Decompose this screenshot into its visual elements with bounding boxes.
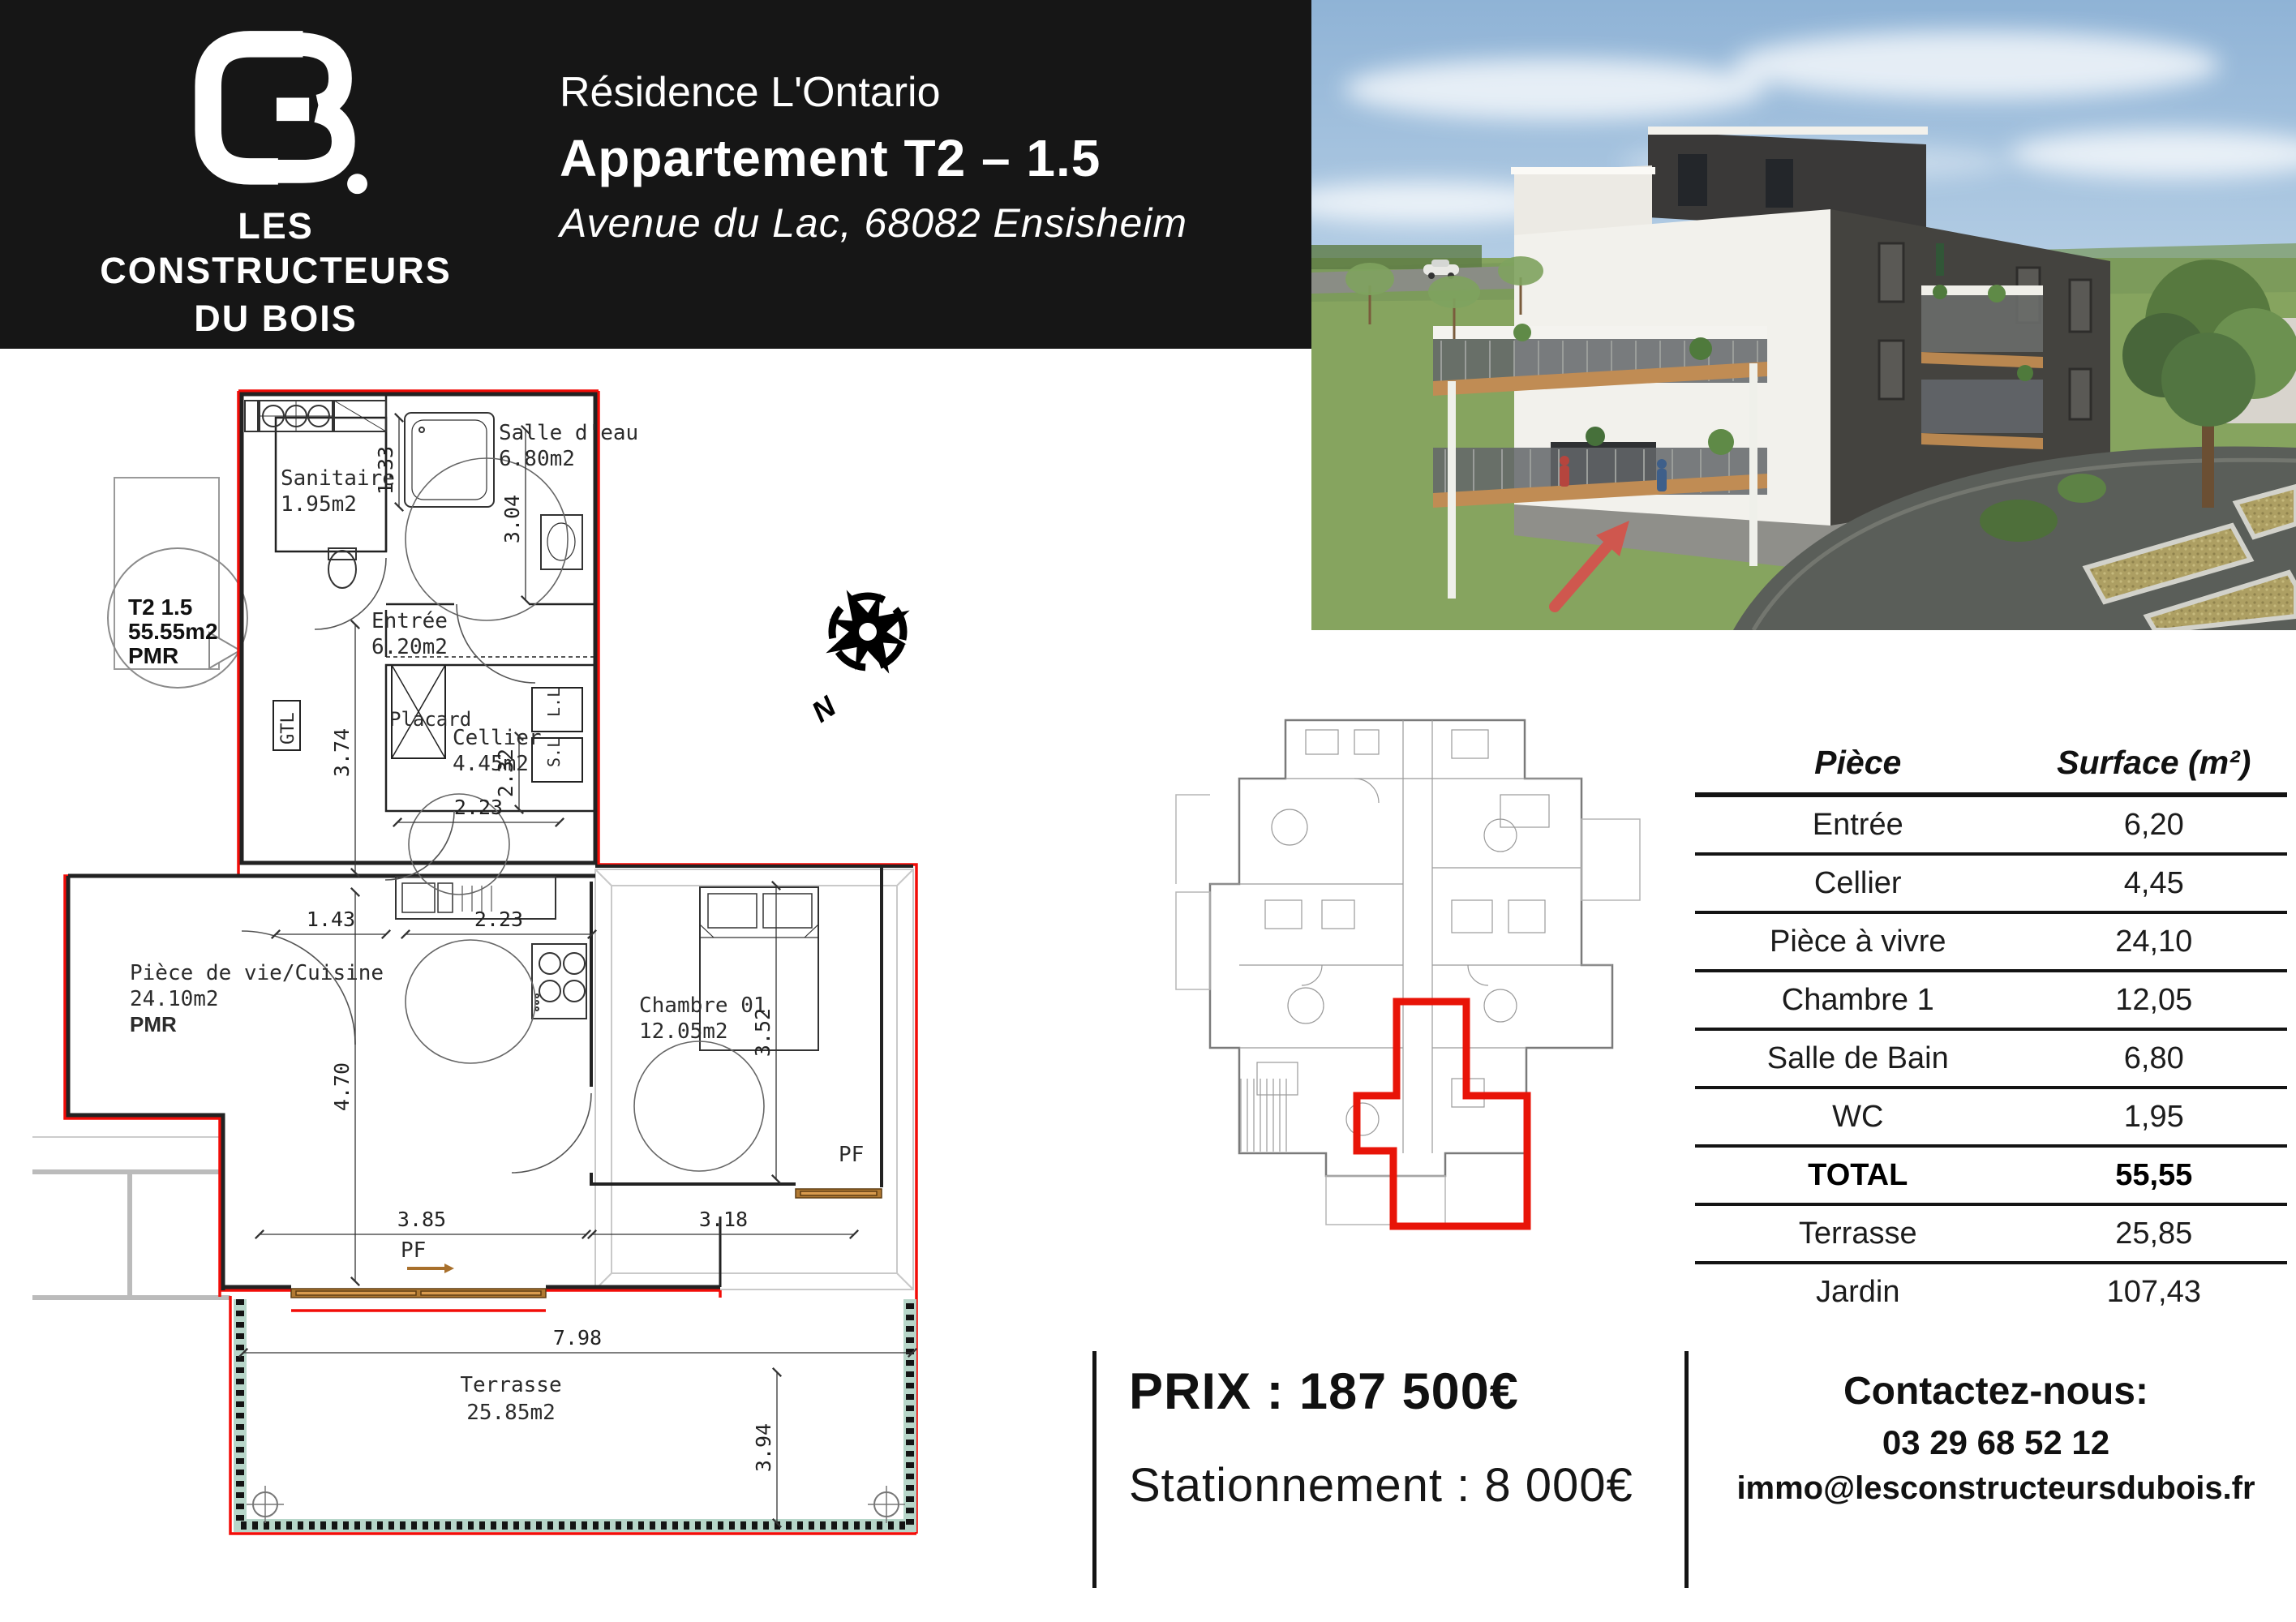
sanitaire-area: 1.95m2 (281, 492, 357, 517)
piece-vie-label: Pièce de vie/Cuisine (130, 961, 384, 985)
contact-email: immo@lesconstructeursdubois.fr (1697, 1470, 2295, 1507)
unit-type-label: T2 1.5 (128, 594, 192, 620)
apartment-title: Appartement T2 – 1.5 (560, 128, 1187, 188)
overview-partitions (1210, 720, 1612, 1153)
dim-3-52: 3.52 (751, 1008, 775, 1057)
windows (291, 1189, 882, 1298)
table-row: Pièce à vivre24,10 (1695, 912, 2287, 971)
address-line: Avenue du Lac, 68082 Ensisheim (560, 200, 1187, 247)
table-row: Chambre 112,05 (1695, 971, 2287, 1029)
cb-logo-icon (174, 15, 377, 197)
overview-building-outline (1210, 720, 1612, 1176)
dim-2-23b: 2.23 (454, 796, 503, 819)
row-surface: 55,55 (2021, 1146, 2288, 1204)
table-row: Terrasse25,85 (1695, 1204, 2287, 1263)
row-surface: 6,80 (2021, 1029, 2288, 1088)
dim-1-33: 1.33 (374, 446, 397, 495)
surface-table-header-row: Pièce Surface (m²) (1695, 732, 2287, 795)
table-row: WC1,95 (1695, 1088, 2287, 1146)
dim-4-70: 4.70 (330, 1062, 354, 1111)
row-piece: TOTAL (1695, 1146, 2021, 1204)
title-block: Résidence L'Ontario Appartement T2 – 1.5… (560, 68, 1187, 247)
row-piece: Chambre 1 (1695, 971, 2021, 1029)
chambre-area: 12.05m2 (639, 1019, 728, 1044)
row-surface: 107,43 (2021, 1263, 2288, 1319)
shrub (1980, 500, 2058, 542)
floor-plan: T2 1.5 55.55m2 PMR (32, 357, 941, 1606)
dim-7-98: 7.98 (553, 1326, 602, 1350)
unit-area-label: 55.55m2 (128, 619, 218, 644)
company-logo: LES CONSTRUCTEURS DU BOIS (77, 15, 474, 341)
salle-eau-area: 6.80m2 (499, 447, 575, 471)
divider-bar-left (1092, 1351, 1097, 1588)
salle-eau-label: Salle d'eau (499, 421, 638, 445)
north-label: N (805, 689, 843, 728)
dim-3-18: 3.18 (699, 1208, 748, 1231)
dim-2-32: 2.32 (494, 749, 517, 797)
unit-pmr-label: PMR (128, 643, 178, 668)
residence-title: Résidence L'Ontario (560, 68, 1187, 117)
entree-area: 6.20m2 (371, 635, 448, 659)
compass-icon (784, 548, 941, 716)
row-piece: Salle de Bain (1695, 1029, 2021, 1088)
row-piece: Entrée (1695, 795, 2021, 854)
logo-name-line1: LES CONSTRUCTEURS (77, 204, 474, 294)
dim-3-74: 3.74 (330, 728, 354, 777)
table-row: Cellier4,45 (1695, 854, 2287, 912)
row-surface: 6,20 (2021, 795, 2288, 854)
dim-3-04: 3.04 (500, 495, 524, 543)
price-block: PRIX : 187 500€ Stationnement : 8 000€ (1129, 1362, 1633, 1513)
row-surface: 24,10 (2021, 912, 2288, 971)
gtl-label: GTL (278, 712, 298, 744)
row-surface: 1,95 (2021, 1088, 2288, 1146)
pf-label-right: PF (839, 1143, 864, 1167)
overview-terraces (1176, 795, 1640, 1225)
contact-block: Contactez-nous: 03 29 68 52 12 immo@lesc… (1697, 1369, 2295, 1507)
row-piece: Terrasse (1695, 1204, 2021, 1263)
col-header-surface: Surface (m²) (2021, 732, 2288, 795)
col-header-piece: Pièce (1695, 732, 2021, 795)
row-piece: WC (1695, 1088, 2021, 1146)
chambre-label: Chambre 01 (639, 993, 766, 1018)
logo-name-line2: DU BOIS (77, 297, 474, 341)
parking-price-label: Stationnement : 8 000€ (1129, 1458, 1633, 1513)
piece-vie-area: 24.10m2 (130, 987, 219, 1011)
unit-label-bubble: T2 1.5 55.55m2 PMR (108, 478, 247, 688)
row-surface: 4,45 (2021, 854, 2288, 912)
terrasse-label: Terrasse (460, 1373, 561, 1397)
divider-bar-right (1684, 1351, 1689, 1588)
row-piece: Cellier (1695, 854, 2021, 912)
terrasse-area: 25.85m2 (466, 1401, 556, 1425)
dim-3-85: 3.85 (397, 1208, 446, 1231)
price-label: PRIX : 187 500€ (1129, 1362, 1633, 1421)
pf-label-bottom: PF (401, 1238, 426, 1263)
dim-3-94: 3.94 (752, 1423, 775, 1472)
row-piece: Pièce à vivre (1695, 912, 2021, 971)
sl-label: S.L (544, 738, 564, 767)
flyer-page: { "header": { "logo": { "monogram": "CB.… (0, 0, 2296, 1622)
dim-2-23a: 2.23 (474, 908, 523, 931)
contact-phone: 03 29 68 52 12 (1697, 1423, 2295, 1462)
entree-label: Entrée (371, 609, 448, 633)
ll-label: L.L (544, 688, 564, 717)
row-surface: 12,05 (2021, 971, 2288, 1029)
unit-highlight-outline (1357, 1002, 1527, 1226)
table-row: Jardin107,43 (1695, 1263, 2287, 1319)
contact-heading: Contactez-nous: (1697, 1369, 2295, 1414)
surface-table: Pièce Surface (m²) Entrée6,20 Cellier4,4… (1695, 732, 2287, 1319)
header-band: LES CONSTRUCTEURS DU BOIS Résidence L'On… (0, 0, 1311, 349)
overview-plan (1160, 697, 1663, 1265)
building-photo (1311, 0, 2296, 630)
neighbour-outlines (32, 869, 913, 1298)
dim-1-43: 1.43 (307, 908, 355, 931)
table-row-total: TOTAL55,55 (1695, 1146, 2287, 1204)
row-piece: Jardin (1695, 1263, 2021, 1319)
walls (68, 394, 913, 1290)
table-row: Salle de Bain6,80 (1695, 1029, 2287, 1088)
row-surface: 25,85 (2021, 1204, 2288, 1263)
piece-vie-pmr: PMR (130, 1012, 177, 1036)
table-row: Entrée6,20 (1695, 795, 2287, 854)
cellier-label: Cellier (453, 726, 542, 750)
